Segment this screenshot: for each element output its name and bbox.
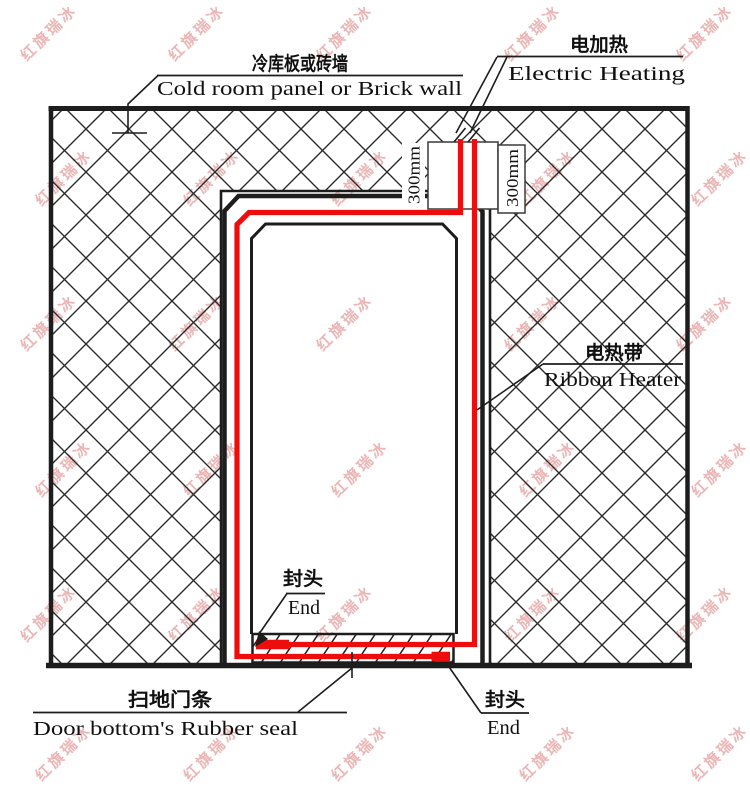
label-ribbon-heater-en: Ribbon Heater — [544, 369, 681, 391]
label-ribbon-heater-zh: 电热带 — [585, 341, 643, 364]
heater-ribbon-wire-left — [237, 139, 461, 657]
label-end-left-leader — [259, 594, 287, 635]
label-end-left-en: End — [288, 597, 320, 619]
label-wall-zh: 冷库板或砖墙 — [252, 52, 348, 75]
label-end-right-en: End — [487, 717, 520, 739]
door-frame-outer — [225, 196, 483, 664]
cold-room-door-heater-diagram: 300mm 300mm 冷库板或砖墙 Cold room panel or Br… — [0, 0, 750, 780]
label-rubber-seal-zh: 扫地门条 — [128, 688, 213, 711]
label-end-right-leader — [447, 664, 481, 713]
label-electric-heating-zh: 电加热 — [570, 33, 628, 56]
label-end-right: 封头 End — [447, 664, 529, 739]
label-wall-en: Cold room panel or Brick wall — [157, 78, 463, 100]
dimension-right-label: 300mm — [503, 149, 522, 207]
dimension-left-label: 300mm — [405, 146, 424, 204]
label-end-right-zh: 封头 — [485, 688, 525, 711]
label-end-left-zh: 封头 — [283, 567, 323, 590]
label-rubber-seal-en: Door bottom's Rubber seal — [33, 718, 299, 740]
label-electric-heating-en: Electric Heating — [508, 63, 685, 85]
